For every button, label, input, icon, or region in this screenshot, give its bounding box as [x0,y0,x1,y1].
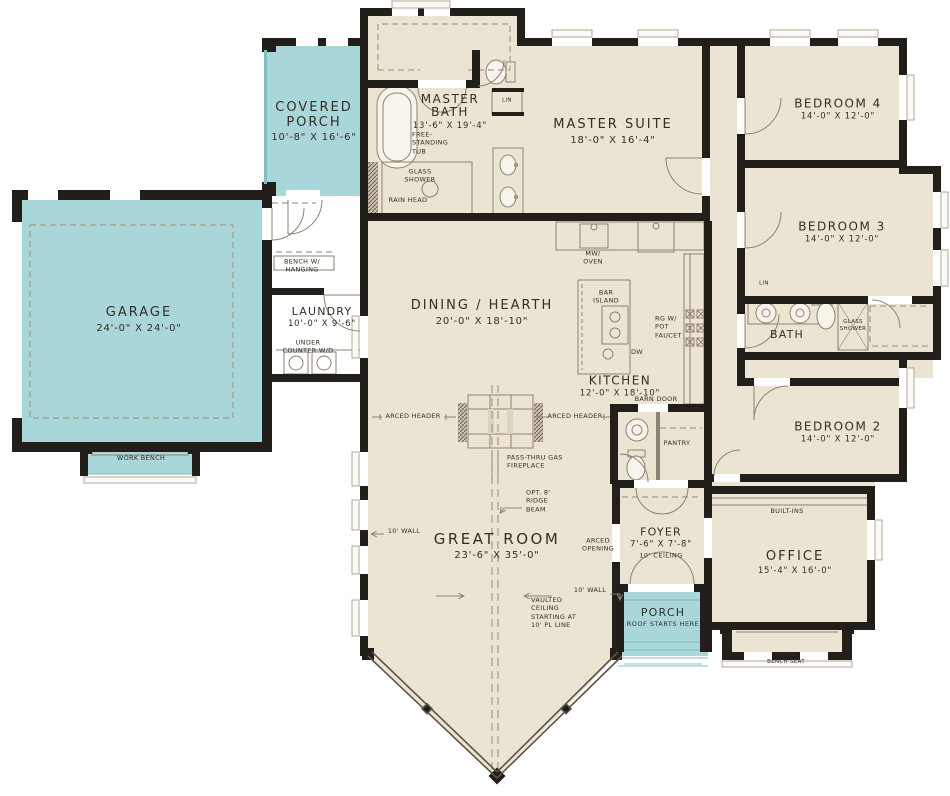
note-under-counter-wd: UNDER COUNTER W/D [280,339,336,356]
note-lin-hall: LIN [755,280,773,287]
note-arced-header-left: ARCED HEADER [382,412,444,420]
note-work-bench: WORK BENCH [108,454,174,462]
room-label-garage: GARAGE 24'-0" X 24'-0" [74,306,204,334]
note-bar-island: BAR ISLAND [590,289,622,306]
note-10-wall-left: 10' WALL [380,527,428,535]
covered-porch-name: COVERED PORCH [266,101,362,130]
note-mw-oven: MW/ OVEN [580,250,606,267]
room-label-master-suite: MASTER SUITE 18'-0" X 16'-4" [528,118,698,146]
toilet-icon [817,303,835,329]
room-label-bath: BATH [752,329,822,341]
toilet-icon [627,456,645,480]
room-label-dining-hearth: DINING / HEARTH 20'-0" X 18'-10" [387,299,577,327]
note-bench-w-hanging: BENCH W/ HANGING [279,258,325,275]
note-dw: DW [628,348,646,356]
note-rg-pot-faucet: RG W/ POT FAUCET [655,314,681,339]
note-10-wall-right: 10' WALL [566,586,614,594]
note-raised-bench-seat: RAISED BENCH SEAT [764,652,808,666]
room-label-great-room: GREAT ROOM 23'-6" X 35'-0" [407,531,587,561]
note-pantry: PANTRY [656,439,698,447]
note-pass-thru-fireplace: PASS-THRU GAS FIREPLACE [507,454,565,471]
floor-plan: COVERED PORCH 10'-8" X 16'-6" MASTER BAT… [0,0,950,796]
note-arced-opening: ARCED OPENING [579,537,617,554]
room-label-porch: PORCH ROOF STARTS HERE [617,607,709,629]
note-built-ins: BUILT-INS [758,507,816,515]
room-label-laundry: LAUNDRY 10'-0" X 9'-6" [272,306,372,330]
note-lin-master: LIN [498,97,516,104]
note-rain-head: RAIN HEAD [384,196,432,204]
covered-porch-dims: 10'-8" X 16'-6" [266,132,362,143]
room-label-bedroom-4: BEDROOM 4 14'-0" X 12'-0" [768,98,908,123]
room-label-master-bath: MASTER BATH 13'-6" X 19'-4" [407,93,493,131]
note-vaulted-ceiling: VAULTED CEILING STARTING AT 10' PL LINE [531,596,577,630]
room-label-covered-porch: COVERED PORCH 10'-8" X 16'-6" [266,101,362,143]
room-label-foyer: FOYER 7'-6" X 7'-8" 10' CEILING [615,526,707,559]
note-barn-door: BARN DOOR [630,395,682,403]
room-label-bedroom-2: BEDROOM 2 14'-0" X 12'-0" [768,421,908,446]
note-glass-shower-bath: GLASS SHOWER [838,319,868,333]
note-glass-shower-master: GLASS SHOWER [403,168,437,185]
note-arced-header-right: ARCED HEADER [544,412,606,420]
note-free-standing-tub: FREE- STANDING TUB [412,130,446,155]
room-label-office: OFFICE 15'-4" X 16'-0" [725,550,865,576]
note-opt-ridge-beam: OPT. 8' RIDGE BEAM [526,488,570,513]
powder-fixtures [626,419,648,480]
room-label-bedroom-3: BEDROOM 3 14'-0" X 12'-0" [772,221,912,246]
